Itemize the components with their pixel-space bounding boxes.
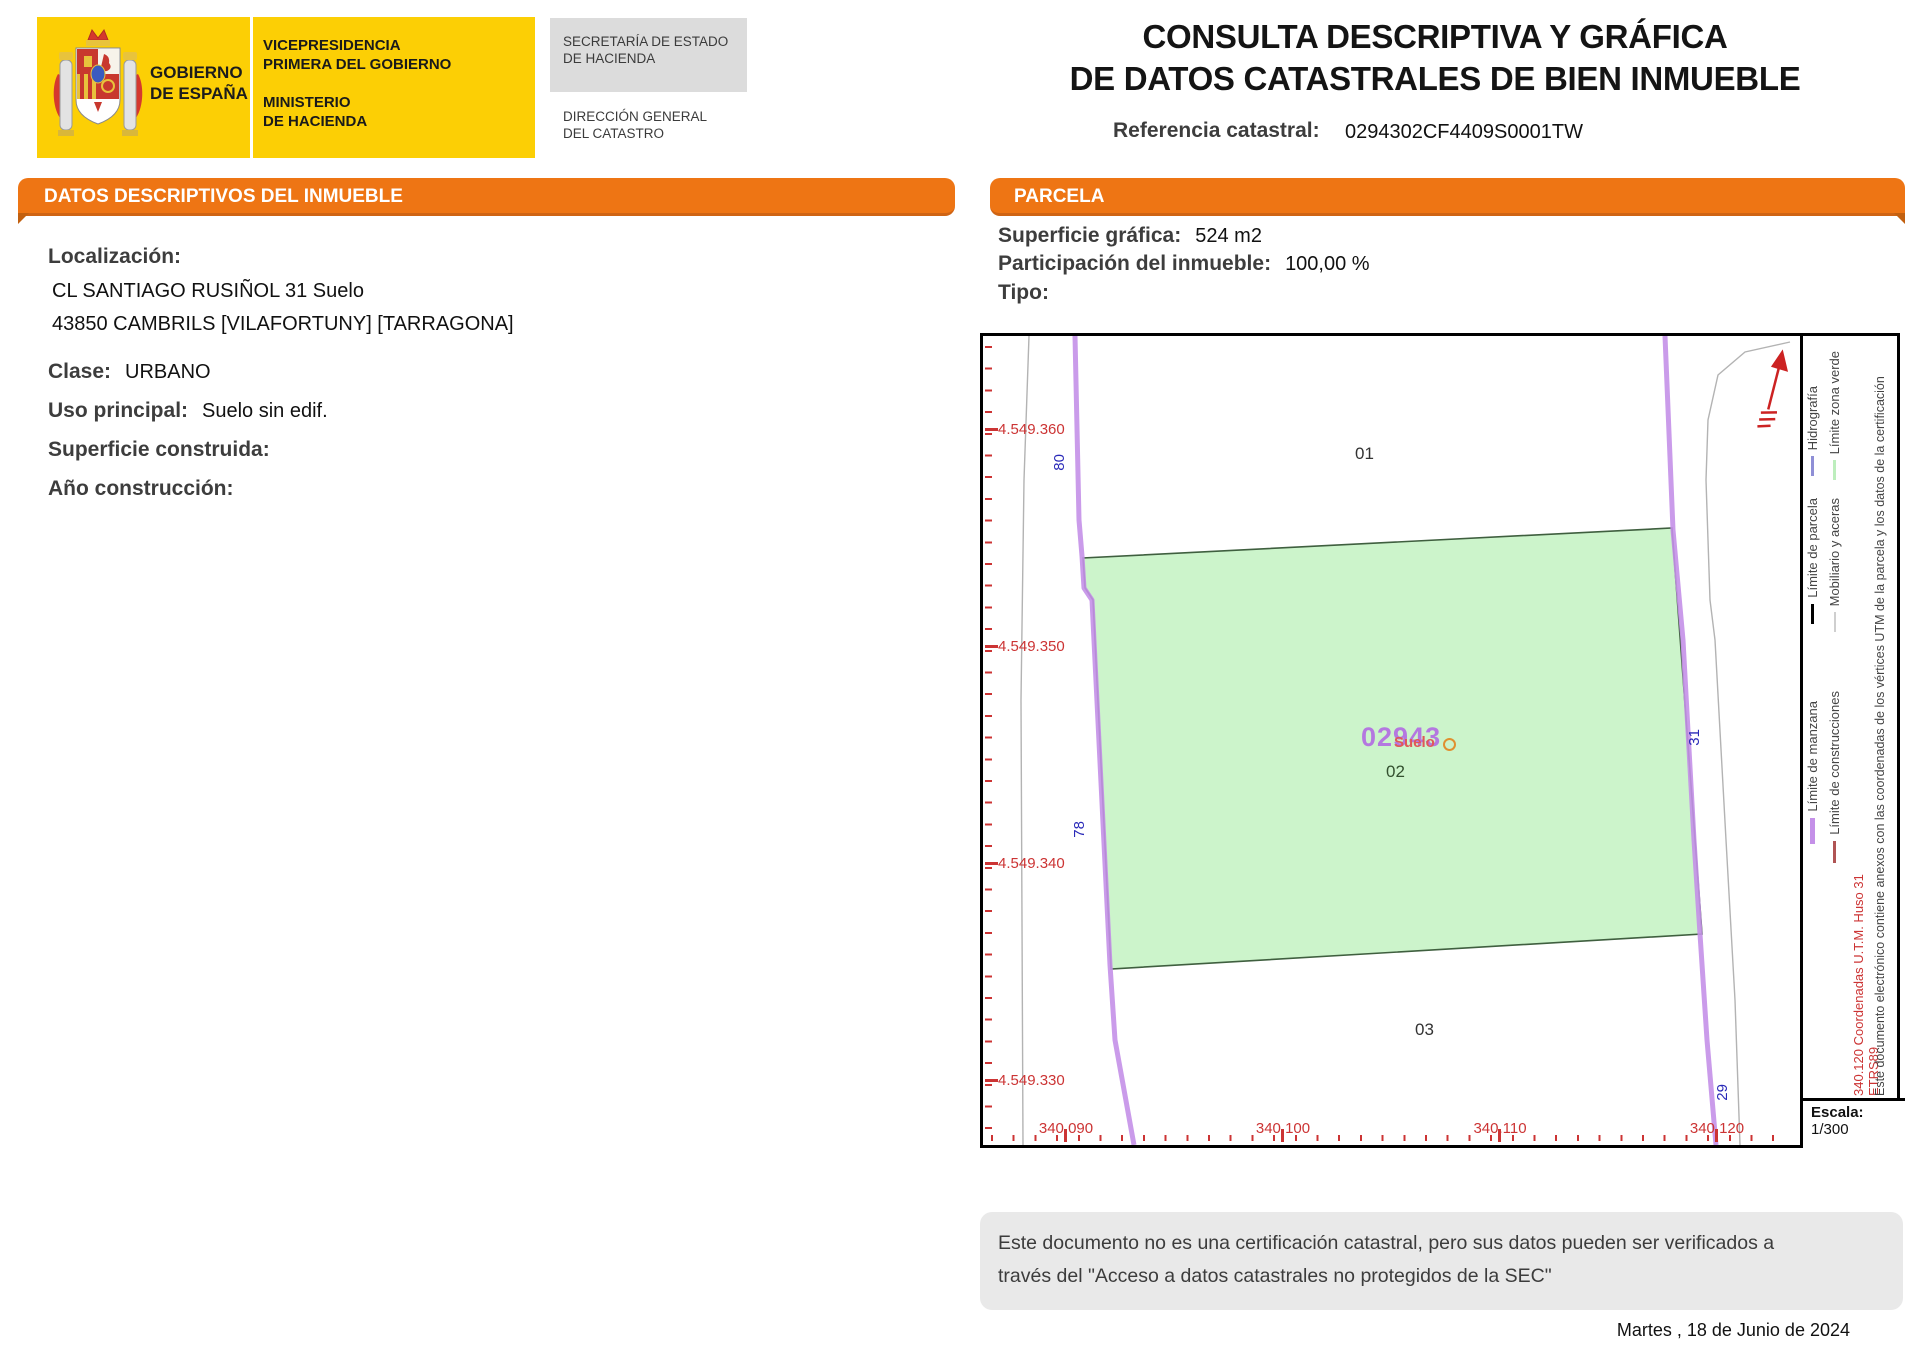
utm-x-label: 340.120 <box>1687 1120 1747 1137</box>
localizacion-label: Localización: <box>48 245 181 269</box>
legend-hidrografia-label: Hidrografía <box>1805 386 1820 450</box>
secretaria-label: SECRETARÍA DE ESTADO DE HACIENDA <box>563 33 728 67</box>
utm-y-label: 4.549.350 <box>998 638 1065 655</box>
limite-manzana-swatch-icon <box>1810 818 1815 844</box>
ministerio-label: MINISTERIO DE HACIENDA <box>263 93 367 131</box>
clase-value: URBANO <box>125 361 211 383</box>
y-major-tick <box>985 428 998 431</box>
zona-verde-swatch-icon <box>1833 460 1836 480</box>
clase-row: Clase:URBANO <box>48 360 211 384</box>
y-major-tick <box>985 862 998 865</box>
superficie-construida-row: Superficie construida: <box>48 438 284 462</box>
legend-mobiliario-aceras-label: Mobiliario y aceras <box>1827 498 1842 606</box>
legend-item-limite-parcela: Límite de parcela <box>1805 498 1820 626</box>
legend-item-limite-construcciones: Límite de construcciones <box>1827 691 1842 876</box>
direccion-catastro-label: DIRECCIÓN GENERAL DEL CATASTRO <box>563 108 707 142</box>
limite-parcela-swatch-icon <box>1811 604 1814 624</box>
utm-y-label: 4.549.360 <box>998 421 1065 438</box>
utm-x-label: 340.100 <box>1253 1120 1313 1137</box>
limite-construcciones-swatch-icon <box>1833 841 1836 863</box>
area-label-01: 01 <box>1355 444 1374 464</box>
participacion-row: Participación del inmueble:100,00 % <box>998 252 1370 276</box>
street-number-80: 80 <box>1051 454 1068 471</box>
legend-limite-manzana-label: Límite de manzana <box>1805 701 1820 812</box>
participacion-value: 100,00 % <box>1285 253 1370 275</box>
uso-principal-label: Uso principal: <box>48 399 188 422</box>
participacion-label: Participación del inmueble: <box>998 252 1271 275</box>
street-number-78: 78 <box>1071 821 1088 838</box>
street-number-31: 31 <box>1686 729 1703 746</box>
cadastral-document-page: GOBIERNO DE ESPAÑA VICEPRESIDENCIA PRIME… <box>0 0 1920 1355</box>
escala-box: Escala: 1/300 <box>1800 1098 1905 1148</box>
uso-row: Uso principal:Suelo sin edif. <box>48 399 328 423</box>
mobiliario-aceras-swatch-icon <box>1834 612 1836 632</box>
street-edge-right-line <box>1706 342 1790 1145</box>
referencia-catastral-value: 0294302CF4409S0001TW <box>1345 121 1583 144</box>
map-legend: Hidrografía Límite de parcela Límite de … <box>1800 336 1897 1098</box>
address-line-2: 43850 CAMBRILS [VILAFORTUNY] [TARRAGONA] <box>52 313 514 336</box>
clase-label: Clase: <box>48 360 111 383</box>
legend-zona-verde-label: Límite zona verde <box>1827 351 1842 454</box>
north-arrow-icon <box>1757 349 1789 429</box>
address-line-1: CL SANTIAGO RUSIÑOL 31 Suelo <box>52 280 364 303</box>
section-header-datos: DATOS DESCRIPTIVOS DEL INMUEBLE <box>18 178 955 216</box>
escala-label: Escala: <box>1811 1104 1905 1121</box>
spain-coat-of-arms-icon <box>50 26 146 148</box>
legend-item-limite-manzana: Límite de manzana <box>1805 701 1820 861</box>
area-label-03: 03 <box>1415 1020 1434 1040</box>
x-axis-ticks <box>991 1135 1791 1141</box>
uso-principal-value: Suelo sin edif. <box>202 400 328 422</box>
document-date: Martes , 18 de Junio de 2024 <box>1000 1320 1850 1341</box>
tipo-row: Tipo: <box>998 281 1063 305</box>
legend-limite-construcciones-label: Límite de construcciones <box>1827 691 1842 835</box>
section-header-parcela: PARCELA <box>990 178 1905 216</box>
superficie-construida-label: Superficie construida: <box>48 438 270 461</box>
disclaimer-line-1: Este documento no es una certificación c… <box>998 1227 1883 1260</box>
disclaimer-box: Este documento no es una certificación c… <box>980 1212 1903 1310</box>
anio-construccion-label: Año construcción: <box>48 477 234 500</box>
superficie-grafica-row: Superficie gráfica:524 m2 <box>998 224 1262 248</box>
legend-cert-note: Este documento electrónico contiene anex… <box>1873 351 1887 1096</box>
cadastral-map: 4.549.360 4.549.350 4.549.340 4.549.330 … <box>980 333 1900 1148</box>
referencia-catastral-label: Referencia catastral: <box>1113 119 1320 143</box>
disclaimer-line-2: través del "Acceso a datos catastrales n… <box>998 1260 1883 1293</box>
utm-x-label: 340.110 <box>1470 1120 1530 1137</box>
tipo-label: Tipo: <box>998 281 1049 304</box>
street-edge-left-line <box>1021 336 1029 1145</box>
superficie-grafica-label: Superficie gráfica: <box>998 224 1181 247</box>
utm-y-label: 4.549.340 <box>998 855 1065 872</box>
gobierno-espana-label: GOBIERNO DE ESPAÑA <box>150 62 248 104</box>
legend-limite-parcela-label: Límite de parcela <box>1805 498 1820 598</box>
logo-divider <box>250 17 253 158</box>
legend-item-hidrografia: Hidrografía <box>1805 386 1820 488</box>
hidrografia-swatch-icon <box>1811 456 1814 476</box>
y-axis-ticks <box>985 346 992 1132</box>
legend-item-zona-verde: Límite zona verde <box>1827 351 1842 488</box>
superficie-grafica-value: 524 m2 <box>1195 225 1262 247</box>
parcel-suelo-label: Suelo <box>1394 734 1435 751</box>
y-major-tick <box>985 645 998 648</box>
vicepresidencia-label: VICEPRESIDENCIA PRIMERA DEL GOBIERNO <box>263 36 451 74</box>
utm-x-label: 340.090 <box>1036 1120 1096 1137</box>
page-title: CONSULTA DESCRIPTIVA Y GRÁFICA DE DATOS … <box>980 16 1890 100</box>
area-label-02: 02 <box>1386 762 1405 782</box>
utm-y-label: 4.549.330 <box>998 1072 1065 1089</box>
street-number-29: 29 <box>1714 1084 1731 1101</box>
escala-value: 1/300 <box>1811 1121 1905 1138</box>
anio-construccion-row: Año construcción: <box>48 477 248 501</box>
y-major-tick <box>985 1079 998 1082</box>
parcel-point-marker <box>1443 738 1456 751</box>
legend-item-mobiliario-aceras: Mobiliario y aceras <box>1827 498 1842 646</box>
